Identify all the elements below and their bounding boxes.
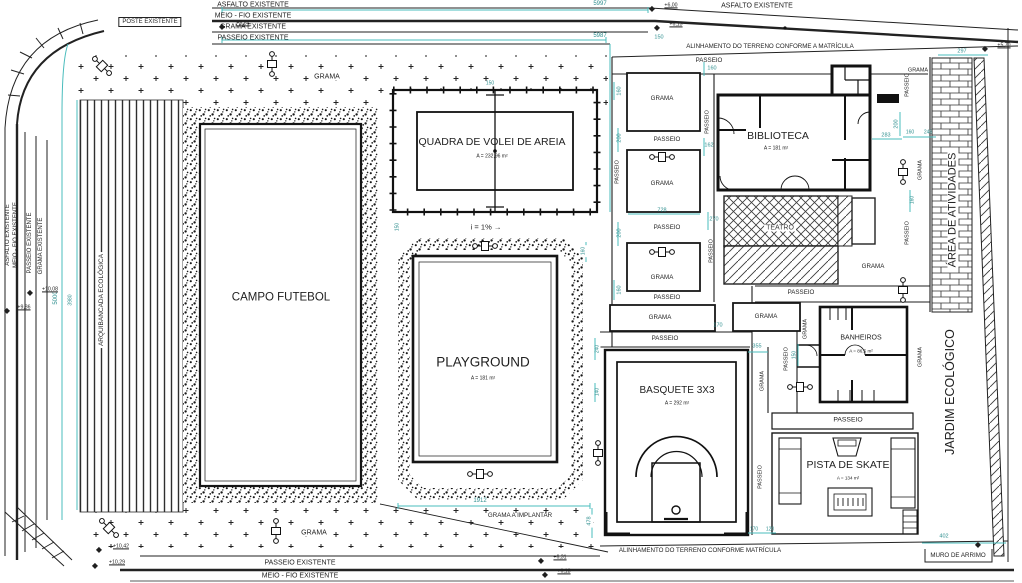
marker-label: +9,86 [17, 305, 30, 310]
grama-existente-left: GRAMA EXISTENTE [38, 218, 44, 275]
dim-label: 3980 [69, 294, 74, 305]
biblioteca-area: A = 181 m² [764, 147, 788, 152]
dim-label: 270 [709, 217, 718, 223]
meio-fio-existente-top: MEIO - FIO EXISTENTE [215, 13, 292, 20]
grama-existente-top: GRAMA EXISTENTE [220, 24, 286, 31]
passeio-existente-left: PASSEIO EXISTENTE [27, 213, 33, 274]
grama-label: GRAMA [312, 74, 342, 81]
dim-label: 160 [911, 196, 916, 204]
asfalto-existente-top: ASFALTO EXISTENTE [217, 2, 289, 9]
marker-icon: ◆ [982, 45, 988, 53]
marker-label: +10,42 [113, 544, 129, 549]
grama-label: GRAMA [651, 96, 674, 102]
dim-label: 5000 [53, 291, 59, 304]
passeio-label: PASSEIO [615, 160, 621, 184]
site-plan: ASFALTO EXISTENTEMEIO - FIO EXISTENTEGRA… [0, 0, 1022, 583]
asfalto-existente-left: ASFALTO EXISTENTE [5, 204, 11, 265]
dim-label: 120 [766, 528, 774, 533]
passeio-existente-bottom: PASSEIO EXISTENTE [264, 560, 335, 567]
basquete-area: A = 292 m² [665, 402, 689, 407]
dim-label: 5997 [593, 1, 606, 7]
grama-label: GRAMA [755, 314, 778, 320]
grama-label: GRAMA [803, 319, 809, 339]
passeio-label: PASSEIO [905, 221, 911, 245]
marker-icon: ◆ [975, 541, 981, 549]
marker-label: +6,31 [553, 555, 566, 560]
marker-label: +6,00 [664, 3, 677, 8]
asfalto-existente-top-right: ASFALTO EXISTENTE [721, 3, 793, 10]
quadra-volei: QUADRA DE VOLEI DE AREIA [418, 137, 565, 148]
grama-label: GRAMA [918, 347, 924, 367]
dim-label: 160 [906, 131, 914, 136]
biblioteca: BIBLIOTECA [747, 131, 809, 142]
arquibancada-ecologica: ARQUIBANCADA ECOLÓGICA [99, 252, 106, 348]
marker-label: +10,29 [109, 560, 125, 565]
grama-a-implantar: GRAMA A IMPLANTAR [486, 513, 554, 519]
quadra-volei-area: A = 232,96 m² [476, 155, 507, 160]
dim-label: 160 [582, 245, 587, 257]
banheiros: BANHEIROS [840, 335, 881, 342]
meio-fio-existente-bottom: MEIO - FIO EXISTENTE [262, 573, 339, 580]
marker-icon: ◆ [96, 546, 102, 554]
marker-label: +8,84 [236, 21, 249, 26]
dim-label: 5987 [593, 33, 606, 39]
meio-fio-existente-left: MEIO - FIO EXISTENTE [13, 202, 19, 268]
passeio-label: PASSEIO [654, 225, 681, 231]
dim-label: 170 [713, 323, 722, 329]
passeio-existente-top: PASSEIO EXISTENTE [217, 35, 288, 42]
grama-label: GRAMA [651, 181, 674, 187]
passeio-label: PASSEIO [654, 295, 681, 301]
dim-label: 150 [486, 82, 494, 87]
passeio-label: PASSEIO [696, 58, 723, 64]
dim-label: 246 [924, 131, 932, 136]
marker-icon: ◆ [538, 557, 544, 565]
dim-label: 150 [396, 221, 401, 233]
dim-label: 200 [617, 228, 623, 237]
passeio-label: PASSEIO [705, 110, 711, 134]
marker-icon: ◆ [27, 289, 33, 297]
marker-label: +6,18 [557, 569, 570, 574]
teatro: TEATRO [764, 225, 796, 232]
dim-label: 170 [750, 528, 758, 533]
banheiros-area: A = 86,5 m² [849, 350, 873, 355]
grama-label: GRAMA [918, 160, 924, 180]
muro-de-arrimo: MURO DE ARRIMO [930, 553, 985, 559]
alinhamento-terreno-bottom: ALINHAMENTO DO TERRENO CONFORME MATRÍCUL… [619, 548, 781, 554]
dim-label: 240 [596, 343, 601, 355]
dim-label: 150 [654, 35, 663, 41]
marker-icon: ◆ [542, 571, 548, 579]
marker-icon: ◆ [654, 24, 660, 32]
playground-area: A = 181 m² [471, 377, 495, 382]
pista-de-skate: PISTA DE SKATE [806, 460, 889, 471]
labels-layer: ASFALTO EXISTENTEMEIO - FIO EXISTENTEGRA… [0, 0, 1022, 583]
passeio-label: PASSEIO [833, 418, 862, 425]
marker-label: +10,08 [42, 287, 58, 292]
dim-label: 728 [657, 208, 666, 214]
campo-futebol: CAMPO FUTEBOL [232, 292, 330, 304]
passeio-label: PASSEIO [654, 137, 681, 143]
dim-label: 150 [793, 351, 798, 359]
passeio-label: PASSEIO [709, 239, 715, 263]
playground: PLAYGROUND [436, 355, 530, 369]
dim-label: 160 [707, 66, 716, 72]
marker-label: +5,70 [997, 43, 1010, 48]
passeio-label: PASSEIO [788, 290, 815, 296]
grama-label: GRAMA [649, 315, 672, 321]
slope-note: i = 1% → [471, 223, 502, 231]
dim-label: 355 [752, 344, 761, 350]
dim-label: 478 [587, 514, 593, 527]
dim-label: 140 [596, 386, 601, 398]
dim-label: 297 [957, 49, 966, 55]
passeio-label: PASSEIO [905, 73, 911, 97]
marker-icon: ◆ [219, 23, 225, 31]
dim-label: 200 [894, 119, 900, 128]
area-de-atividades: ÁREA DE ATIVIDADES [948, 151, 959, 270]
passeio-label: PASSEIO [784, 347, 790, 371]
jardim-ecologico: JARDIM ECOLÓGICO [944, 329, 957, 455]
grama-label: GRAMA [760, 371, 766, 391]
marker-icon: ◆ [649, 5, 655, 13]
passeio-label: PASSEIO [758, 465, 764, 489]
dim-label: 402 [939, 534, 948, 540]
passeio-label: PASSEIO [652, 336, 679, 342]
poste-existente: POSTE EXISTENTE [118, 17, 181, 27]
dim-label: 283 [881, 133, 890, 139]
marker-icon: ◆ [4, 307, 10, 315]
grama-label: GRAMA [862, 264, 885, 270]
dim-label: 160 [617, 285, 623, 294]
dim-label: 200 [617, 133, 623, 142]
dim-label: 160 [617, 86, 623, 95]
pista-de-skate-area: A = 134 m² [837, 477, 859, 482]
alinhamento-terreno-top: ALINHAMENTO DO TERRENO CONFORME A MATRÍC… [686, 44, 853, 50]
grama-label: GRAMA [651, 275, 674, 281]
marker-icon: ◆ [92, 562, 98, 570]
grama-label: GRAMA [908, 68, 928, 74]
dim-label: 1912 [471, 498, 488, 504]
marker-label: +6,13 [669, 22, 682, 27]
grama-label: GRAMA [299, 530, 329, 537]
basquete-3x3: BASQUETE 3X3 [639, 386, 714, 396]
dim-label: 162 [704, 143, 713, 149]
